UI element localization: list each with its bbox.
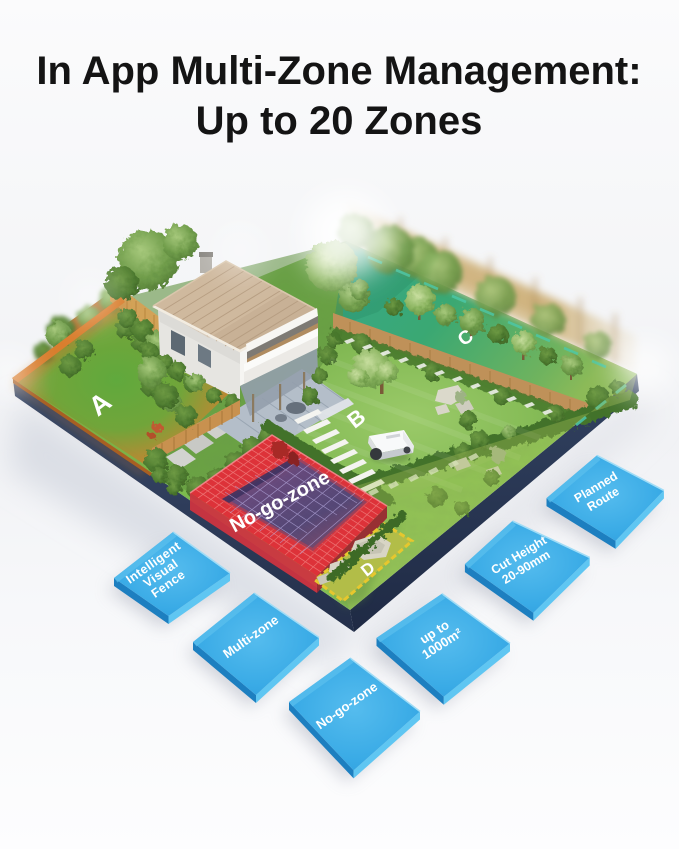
svg-text:Up to 20 Zones: Up to 20 Zones [196,99,483,143]
svg-text:In App Multi-Zone Management:: In App Multi-Zone Management: [36,49,641,93]
